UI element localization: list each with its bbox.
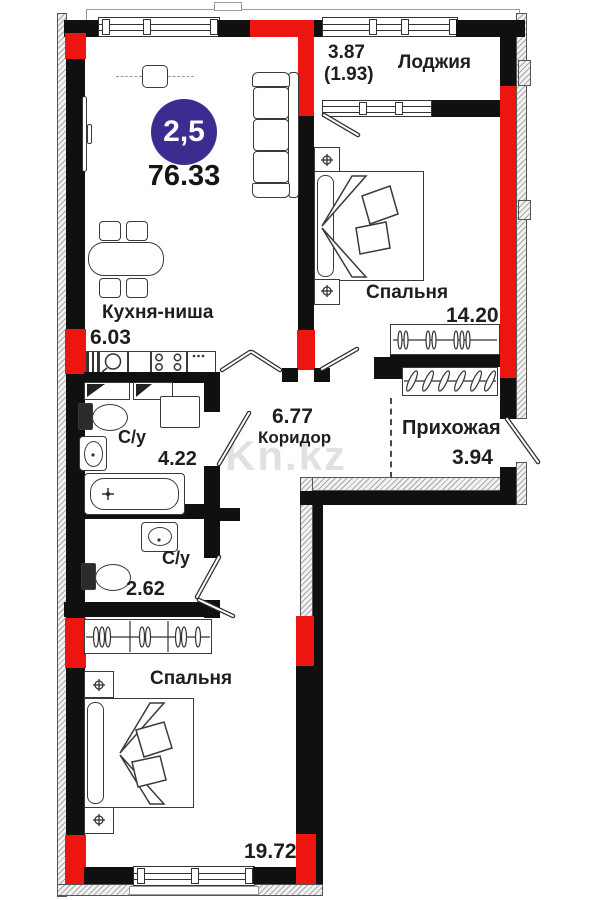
bedroom1-area: 14.20 [446, 304, 499, 328]
wall-bath-v2 [204, 466, 220, 508]
chair [126, 278, 148, 298]
sofa-back [288, 72, 299, 198]
wardrobe-bedroom1 [390, 324, 500, 355]
wall-wing-lining [313, 491, 323, 884]
hallway-name: Прихожая [402, 417, 501, 440]
window-mullion [401, 19, 409, 35]
kitchen-area: 6.03 [90, 326, 131, 350]
water-heater [160, 396, 200, 428]
chair [126, 221, 148, 241]
dining-table [88, 242, 164, 276]
wardrobe-bedroom2 [84, 619, 212, 654]
rooms-count-badge: 2,5 [151, 99, 217, 165]
window-mullion [369, 19, 377, 35]
column-left-4 [65, 835, 86, 884]
loggia-area-coeff: (1.93) [324, 64, 374, 86]
column-wing-1 [296, 616, 314, 666]
outer-wall-right-lower [516, 462, 527, 505]
nightstand [314, 279, 340, 305]
bed-headboard [87, 702, 104, 804]
bathtub-basin [90, 478, 179, 510]
kitchen-stove [151, 351, 187, 373]
zone-boundary-dashed [390, 398, 392, 478]
ac-basket-2 [518, 200, 531, 220]
kitchen-name: Кухня-ниша [102, 302, 213, 324]
tv-console-icon [142, 65, 168, 88]
wall-right-top [500, 20, 516, 86]
column-left-3 [65, 618, 86, 668]
facade-notch [214, 2, 242, 11]
window-glass [323, 24, 457, 31]
floor-plan: 2,5 76.33 3.87 (1.93) Лоджия Спальня 14.… [0, 0, 609, 900]
toilet-tank [78, 403, 93, 430]
wall-wardrobe [390, 355, 500, 367]
column-wing-2 [296, 834, 316, 884]
wall-loggia-bottom [432, 100, 500, 117]
window-mullion [395, 102, 403, 115]
nightstand [84, 807, 114, 834]
sofa-armrest [252, 72, 290, 87]
wardrobe-hallway [402, 367, 498, 396]
column-corridor [297, 330, 315, 370]
tv-bracket [87, 124, 92, 144]
wall-wing-inner [296, 666, 314, 836]
wall-cap-left [282, 368, 298, 382]
nightstand [84, 671, 114, 698]
window-sill [129, 886, 259, 895]
loggia-name: Лоджия [398, 52, 471, 74]
kitchen-sink-cabinet [99, 351, 128, 373]
window-mullion [137, 868, 145, 884]
wall-divider [298, 116, 314, 330]
sink-basin [148, 527, 172, 546]
window-loggia [322, 17, 458, 37]
window-mullion [210, 19, 218, 35]
corridor-name: Коридор [258, 428, 331, 448]
wall-hallway-stub [374, 357, 402, 379]
dashed-guide [116, 76, 142, 77]
kitchen-cabinet [128, 351, 151, 373]
column-left-1 [65, 33, 86, 59]
wall-cap-right [314, 368, 330, 382]
kitchen-cabinet-2 [187, 351, 216, 373]
wall-top-2 [218, 20, 252, 37]
bed-headboard [317, 175, 334, 277]
window-living [98, 17, 220, 37]
rooms-count: 2,5 [163, 115, 205, 149]
column-divider-top [298, 20, 314, 116]
wall-bath-v1 [204, 372, 220, 412]
window-glass [99, 24, 219, 31]
sofa-cushion [253, 87, 289, 119]
wall-bath-v3 [204, 520, 220, 558]
window-mullion [359, 102, 367, 115]
chair [99, 278, 121, 298]
loggia-area: 3.87 [328, 42, 365, 64]
window-mullion [143, 19, 151, 35]
sofa-armrest [252, 183, 290, 198]
window-glass [323, 106, 431, 113]
wall-step-lining [300, 491, 516, 505]
bedroom1-name: Спальня [366, 282, 448, 304]
window-mullion [245, 868, 253, 884]
corridor-area: 6.77 [272, 405, 313, 429]
wall-bottom-1 [84, 867, 136, 884]
column-top [250, 20, 302, 37]
kitchen-radiator [86, 351, 99, 373]
wall-right-mid [500, 378, 516, 419]
bedroom2-name: Спальня [150, 668, 232, 690]
wall-bath-stub [204, 508, 240, 521]
chair [99, 221, 121, 241]
bath1-area: 4.22 [158, 448, 197, 471]
wall-bedroom2-top [64, 602, 212, 617]
window-loggia-inner [322, 100, 432, 117]
toilet-tank [81, 563, 96, 590]
ac-basket-1 [518, 60, 531, 86]
bedroom2-area: 19.72 [244, 840, 297, 864]
hallway-area: 3.94 [452, 446, 493, 470]
bath2-name: С/у [162, 548, 190, 569]
total-area: 76.33 [138, 160, 230, 193]
nightstand [314, 147, 340, 173]
sofa-cushion [253, 151, 289, 183]
window-mullion [102, 19, 110, 35]
bath2-area: 2.62 [126, 578, 165, 601]
wall-bottom-2 [253, 867, 296, 884]
sofa-cushion [253, 119, 289, 151]
washer-unit [84, 382, 130, 400]
window-mullion [191, 868, 199, 884]
column-right [500, 86, 516, 378]
window-bedroom2 [133, 866, 255, 886]
column-left-2 [65, 329, 86, 374]
sink-basin [84, 441, 103, 467]
bath1-name: С/у [118, 427, 146, 448]
dashed-guide [168, 76, 194, 77]
